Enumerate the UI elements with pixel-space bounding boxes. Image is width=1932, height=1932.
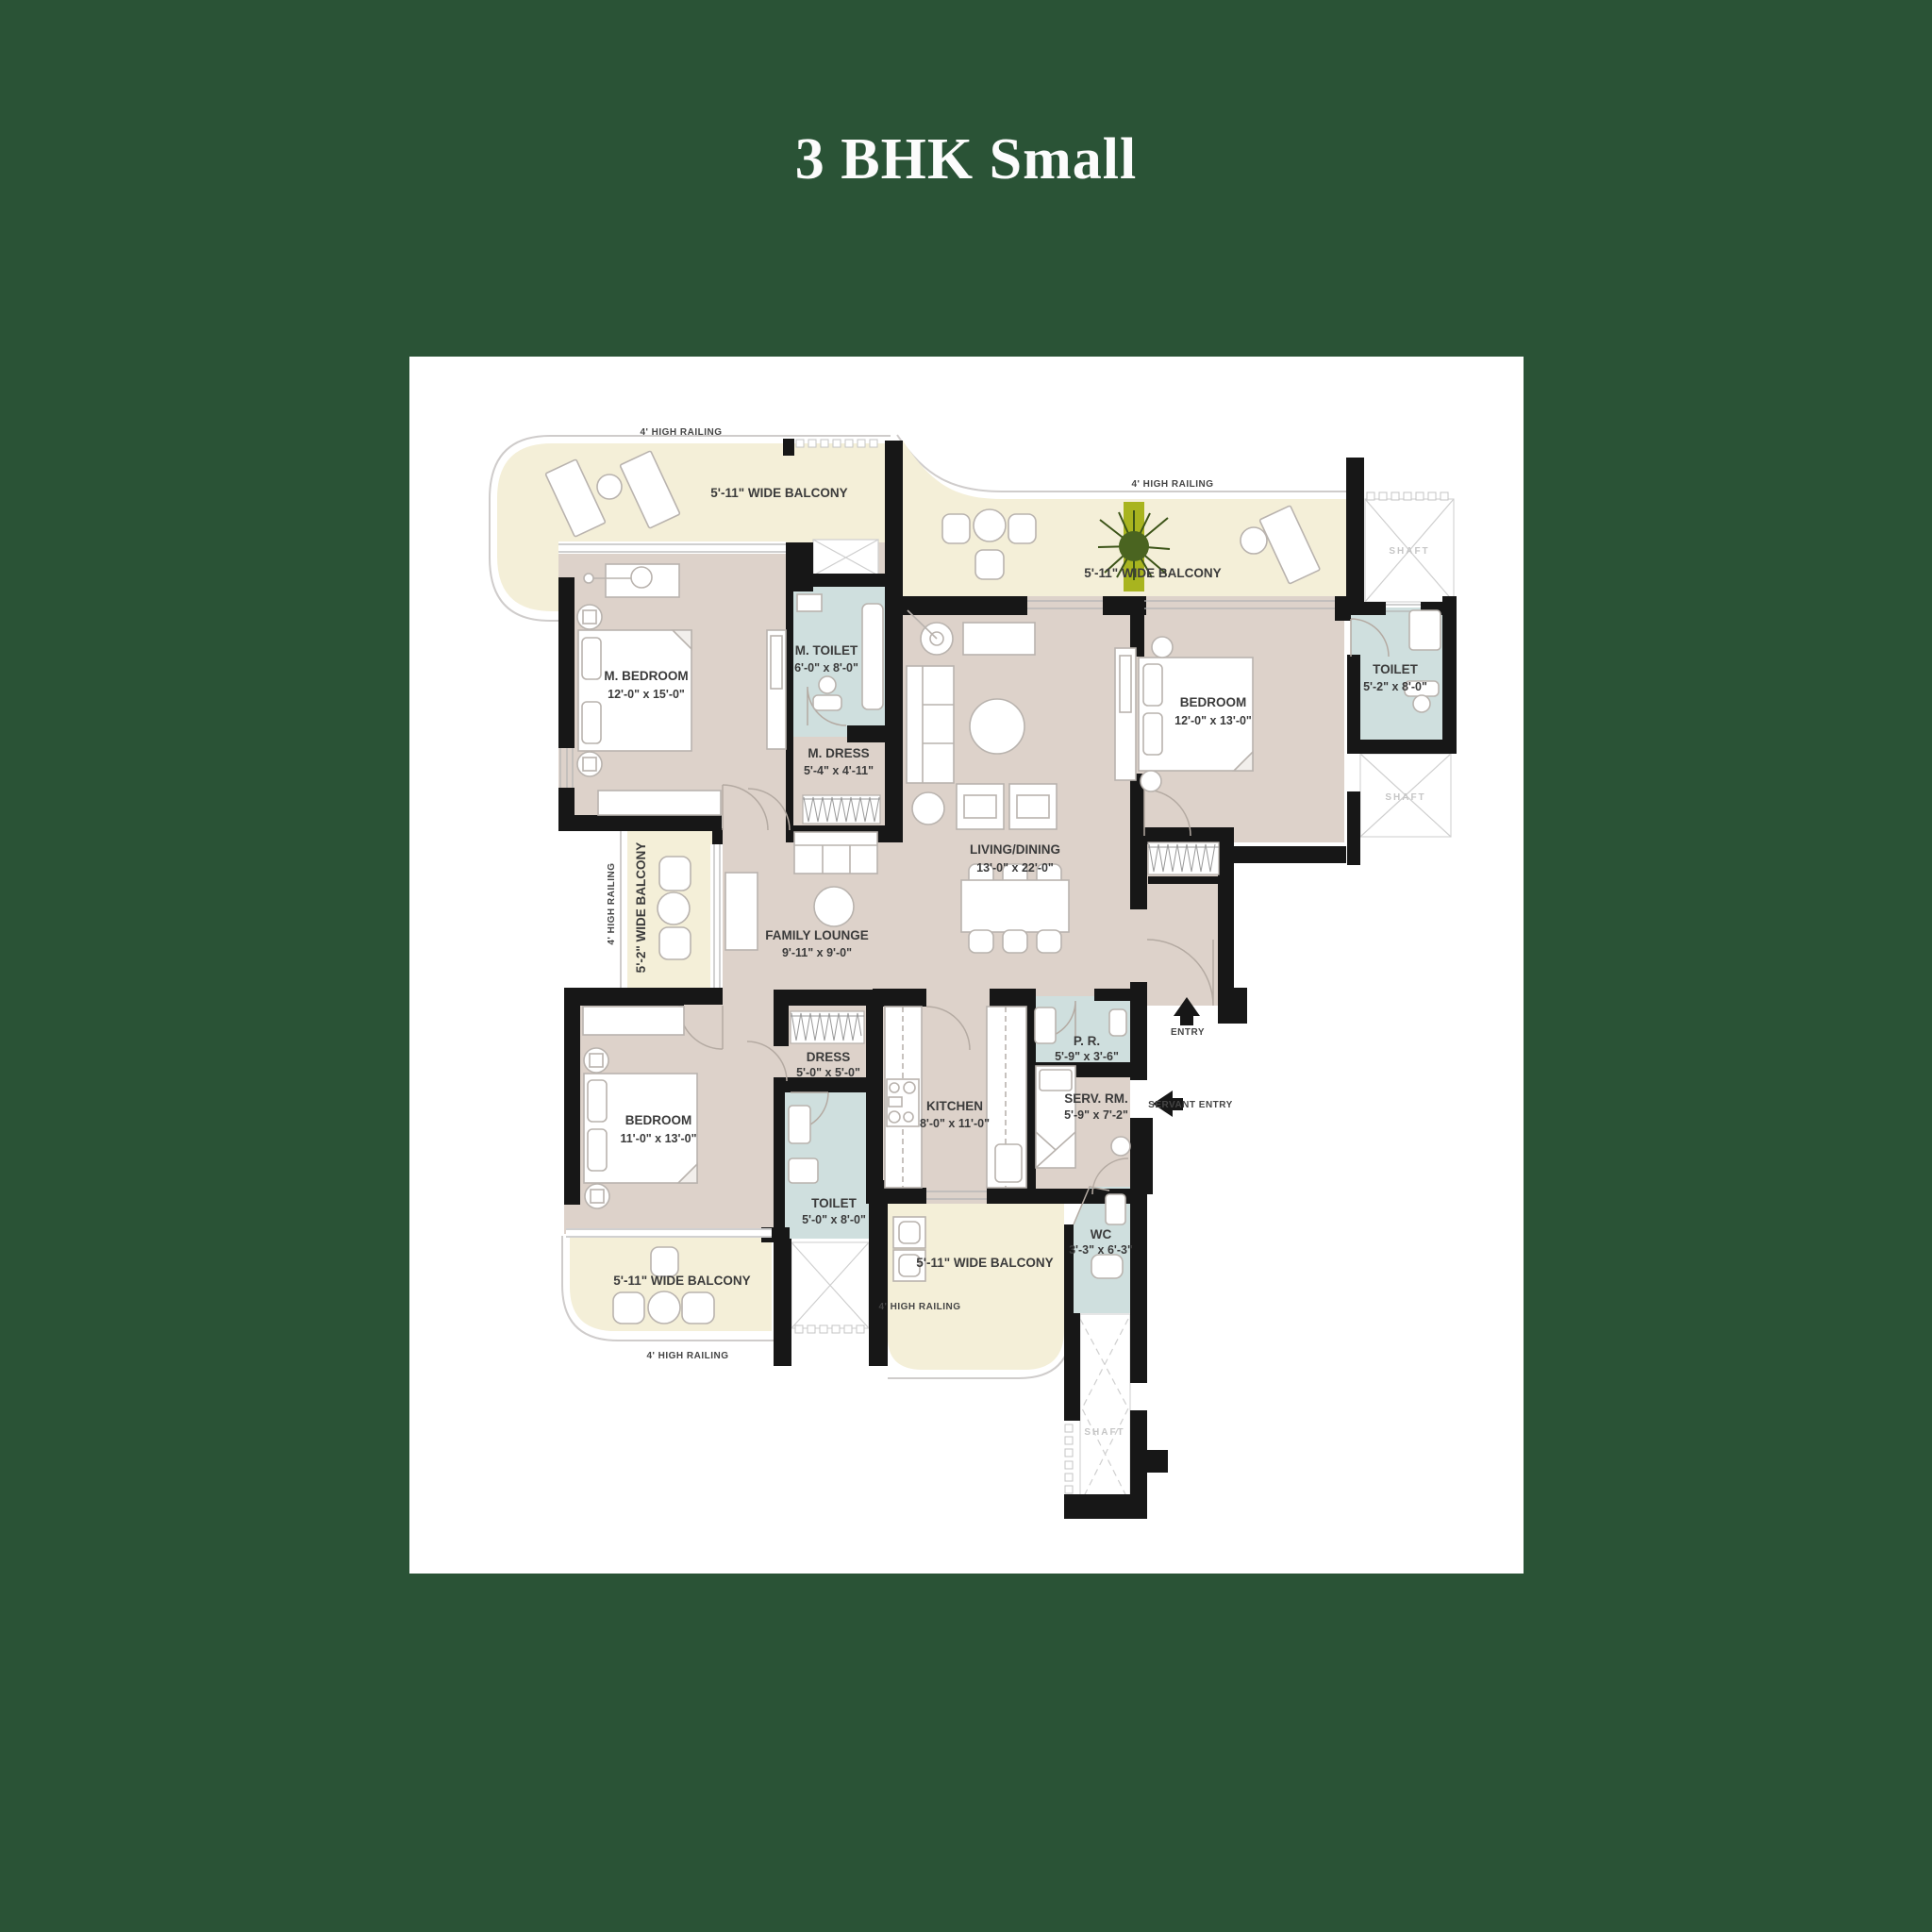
svg-text:SHAFT: SHAFT [1385, 792, 1425, 803]
svg-text:M. DRESS: M. DRESS [808, 746, 869, 760]
svg-text:DRESS: DRESS [807, 1050, 851, 1064]
svg-text:5'-11" WIDE BALCONY: 5'-11" WIDE BALCONY [916, 1256, 1053, 1270]
svg-text:WC: WC [1091, 1227, 1112, 1241]
svg-text:P. R.: P. R. [1074, 1034, 1100, 1048]
svg-text:TOILET: TOILET [811, 1196, 858, 1210]
svg-text:4' HIGH RAILING: 4' HIGH RAILING [1131, 479, 1213, 490]
svg-text:TOILET: TOILET [1373, 662, 1419, 676]
svg-text:BEDROOM: BEDROOM [1180, 695, 1247, 709]
svg-text:5'-0" x 8'-0": 5'-0" x 8'-0" [802, 1213, 866, 1226]
svg-text:5'-2" x 8'-0": 5'-2" x 8'-0" [1363, 680, 1427, 693]
svg-text:5'-2" WIDE BALCONY: 5'-2" WIDE BALCONY [634, 842, 648, 974]
svg-text:SHAFT: SHAFT [1084, 1427, 1124, 1438]
svg-text:M. BEDROOM: M. BEDROOM [604, 669, 688, 683]
svg-text:11'-0" x 13'-0": 11'-0" x 13'-0" [620, 1132, 696, 1145]
svg-text:SERV. RM.: SERV. RM. [1064, 1091, 1128, 1106]
svg-text:13'-0" x 22'-0": 13'-0" x 22'-0" [976, 861, 1054, 874]
svg-text:4' HIGH RAILING: 4' HIGH RAILING [878, 1302, 960, 1312]
svg-text:5'-11" WIDE BALCONY: 5'-11" WIDE BALCONY [710, 486, 847, 500]
svg-text:4' HIGH RAILING: 4' HIGH RAILING [646, 1351, 728, 1361]
svg-text:M. TOILET: M. TOILET [795, 643, 858, 658]
svg-text:KITCHEN: KITCHEN [926, 1099, 983, 1113]
svg-text:SHAFT: SHAFT [1389, 546, 1429, 557]
svg-text:BEDROOM: BEDROOM [625, 1113, 692, 1127]
svg-text:LIVING/DINING: LIVING/DINING [970, 842, 1060, 857]
svg-text:4' HIGH RAILING: 4' HIGH RAILING [607, 862, 617, 944]
svg-text:ENTRY: ENTRY [1171, 1027, 1205, 1038]
svg-text:6'-0" x 8'-0": 6'-0" x 8'-0" [794, 661, 858, 675]
svg-text:5'-11" WIDE BALCONY: 5'-11" WIDE BALCONY [1084, 566, 1221, 580]
svg-text:5'-9" x 7'-2": 5'-9" x 7'-2" [1064, 1108, 1128, 1122]
svg-text:4' HIGH RAILING: 4' HIGH RAILING [640, 427, 722, 438]
svg-text:5'-4" x 4'-11": 5'-4" x 4'-11" [804, 764, 874, 777]
svg-text:3 BHK Small: 3 BHK Small [795, 127, 1137, 192]
svg-text:5'-0" x 5'-0": 5'-0" x 5'-0" [796, 1066, 860, 1079]
svg-text:8'-0" x 11'-0": 8'-0" x 11'-0" [920, 1117, 990, 1130]
svg-text:FAMILY LOUNGE: FAMILY LOUNGE [765, 928, 869, 942]
svg-text:3'-3" x 6'-3": 3'-3" x 6'-3" [1069, 1243, 1133, 1257]
svg-text:12'-0" x 15'-0": 12'-0" x 15'-0" [608, 688, 685, 701]
svg-text:5'-9" x 3'-6": 5'-9" x 3'-6" [1055, 1050, 1119, 1063]
svg-text:5'-11" WIDE BALCONY: 5'-11" WIDE BALCONY [613, 1274, 750, 1288]
svg-text:12'-0" x 13'-0": 12'-0" x 13'-0" [1174, 714, 1252, 727]
svg-text:SERVANT ENTRY: SERVANT ENTRY [1148, 1100, 1233, 1110]
svg-text:9'-11" x 9'-0": 9'-11" x 9'-0" [782, 946, 852, 959]
